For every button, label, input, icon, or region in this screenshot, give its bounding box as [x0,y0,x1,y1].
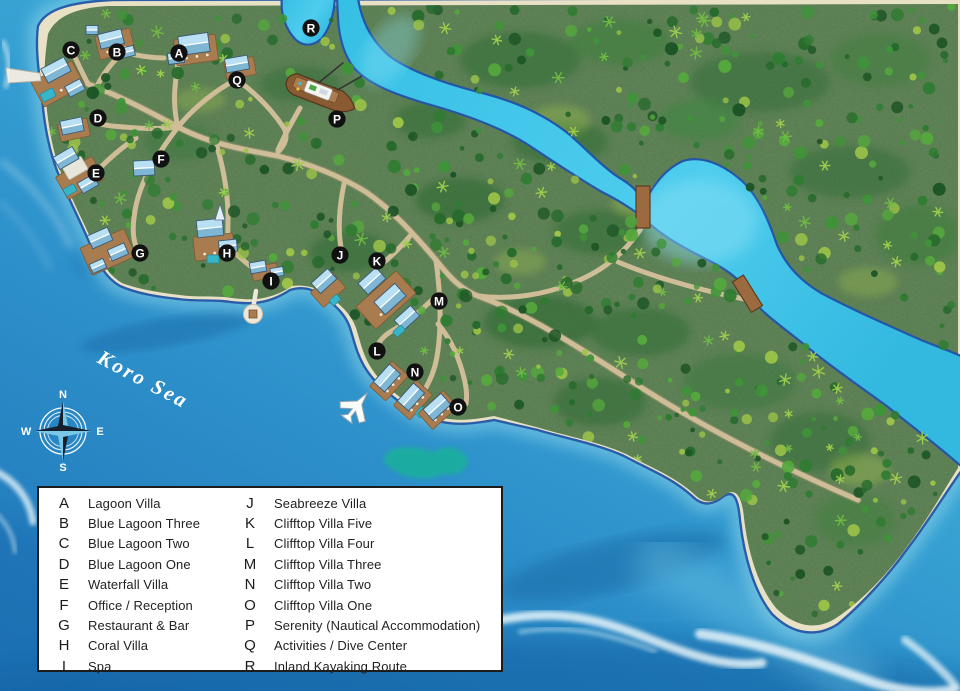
legend-item-label: Activities / Dive Center [274,638,407,653]
legend-item-label: Lagoon Villa [88,496,161,511]
legend-item-key: F [51,597,77,614]
legend-item: OClifftop Villa One [237,595,480,615]
marker-letter: M [434,295,444,309]
legend-item: JSeabreeze Villa [237,493,480,513]
legend-item-label: Office / Reception [88,598,193,613]
map-marker-q[interactable]: Q [228,71,245,88]
legend-item-label: Clifftop Villa Three [274,557,382,572]
legend-item-label: Coral Villa [88,638,148,653]
compass-east-label: E [96,426,103,438]
marker-letter: F [157,153,164,167]
legend-item: QActivities / Dive Center [237,636,480,656]
legend-item-key: L [237,535,263,552]
legend-item-key: M [237,556,263,573]
legend-item-label: Waterfall Villa [88,577,168,592]
pool [207,255,219,263]
legend-item-key: G [51,617,77,634]
legend-item: PSerenity (Nautical Accommodation) [237,615,480,635]
legend-item-label: Clifftop Villa Five [274,516,372,531]
legend-item-label: Spa [88,659,111,674]
map-marker-k[interactable]: K [368,252,385,269]
legend-item-key: R [237,658,263,675]
legend-item-key: P [237,617,263,634]
legend-item: GRestaurant & Bar [51,615,200,635]
marker-letter: H [223,247,232,261]
legend-item-key: A [51,495,77,512]
map-marker-h[interactable]: H [218,244,235,261]
legend-item: MClifftop Villa Three [237,554,480,574]
map-marker-l[interactable]: L [368,342,385,359]
legend-item-label: Blue Lagoon Two [88,536,190,551]
map-marker-j[interactable]: J [331,246,348,263]
legend-column-1: ALagoon VillaBBlue Lagoon ThreeCBlue Lag… [51,493,200,677]
legend-item-key: I [51,658,77,675]
legend-item-key: N [237,576,263,593]
building-roof [86,26,98,35]
map-marker-f[interactable]: F [152,150,169,167]
legend-item: BBlue Lagoon Three [51,513,200,533]
marker-letter: P [333,113,341,127]
legend-item: EWaterfall Villa [51,575,200,595]
marker-letter: K [373,255,382,269]
building-roof [196,218,224,238]
legend-item-key: J [237,495,263,512]
legend-item-key: O [237,597,263,614]
legend-item-key: E [51,576,77,593]
legend-item-label: Inland Kayaking Route [274,659,407,674]
legend-item: RInland Kayaking Route [237,656,480,676]
legend-column-2: JSeabreeze VillaKClifftop Villa FiveLCli… [237,493,480,677]
legend-item-label: Clifftop Villa One [274,598,372,613]
marker-letter: N [411,366,420,380]
legend-item: FOffice / Reception [51,595,200,615]
bridge-north [636,186,650,228]
marker-letter: I [269,275,272,289]
legend-item-label: Clifftop Villa Four [274,536,374,551]
building-roof [133,160,155,176]
legend-item: KClifftop Villa Five [237,513,480,533]
legend-item-label: Blue Lagoon One [88,557,191,572]
map-marker-p[interactable]: P [328,110,345,127]
legend-item: NClifftop Villa Two [237,575,480,595]
legend-item-label: Clifftop Villa Two [274,577,371,592]
legend-item: LClifftop Villa Four [237,534,480,554]
map-marker-e[interactable]: E [87,164,104,181]
marker-letter: G [135,247,144,261]
marker-letter: L [373,345,380,359]
marker-letter: R [307,22,316,36]
map-marker-b[interactable]: B [108,43,125,60]
legend-item: CBlue Lagoon Two [51,534,200,554]
marker-letter: C [67,44,76,58]
legend-item-key: Q [237,637,263,654]
map-marker-r[interactable]: R [302,19,319,36]
marker-letter: E [92,167,100,181]
marker-letter: J [337,249,344,263]
resort-map: ABCDEFGHIJKLMNOPQR N E S W Koro Sea ALag… [0,0,960,691]
legend-item: ISpa [51,656,200,676]
legend-item-label: Serenity (Nautical Accommodation) [274,618,480,633]
map-marker-c[interactable]: C [62,41,79,58]
map-marker-o[interactable]: O [449,398,466,415]
map-marker-i[interactable]: I [262,272,279,289]
building-roof [249,260,267,274]
marker-letter: D [94,112,103,126]
map-marker-a[interactable]: A [170,44,187,61]
marker-letter: A [175,47,184,61]
legend-item-key: H [51,637,77,654]
marker-letter: O [453,401,462,415]
legend-item: ALagoon Villa [51,493,200,513]
map-marker-m[interactable]: M [430,292,447,309]
compass-south-label: S [59,462,66,474]
legend-item: HCoral Villa [51,636,200,656]
compass-north-label: N [59,389,67,401]
legend-item-label: Restaurant & Bar [88,618,189,633]
legend-box: ALagoon VillaBBlue Lagoon ThreeCBlue Lag… [37,486,503,672]
legend-item-label: Blue Lagoon Three [88,516,200,531]
legend-item-key: C [51,535,77,552]
map-marker-n[interactable]: N [406,363,423,380]
marker-letter: Q [232,74,241,88]
legend-item-label: Seabreeze Villa [274,496,366,511]
legend-item-key: D [51,556,77,573]
marker-letter: B [113,46,122,60]
legend-item: DBlue Lagoon One [51,554,200,574]
legend-item-key: K [237,515,263,532]
compass-west-label: W [21,426,32,438]
legend-item-key: B [51,515,77,532]
map-marker-g[interactable]: G [131,244,148,261]
map-marker-d[interactable]: D [89,109,106,126]
